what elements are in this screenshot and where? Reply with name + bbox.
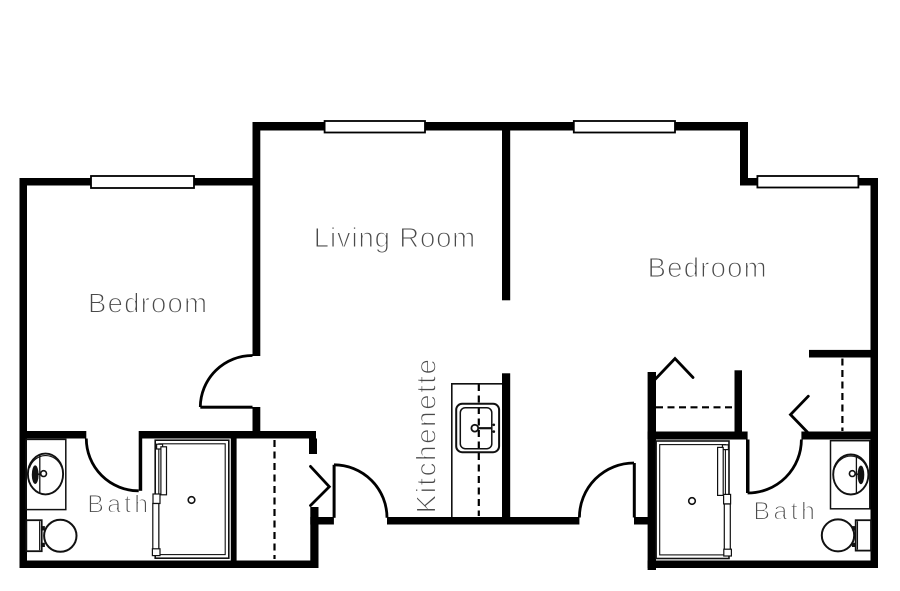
svg-text:Bath: Bath	[753, 497, 815, 525]
svg-text:Bedroom: Bedroom	[88, 288, 207, 319]
svg-text:Kitchenette: Kitchenette	[411, 359, 442, 514]
svg-text:Bedroom: Bedroom	[648, 252, 767, 283]
svg-text:Living Room: Living Room	[314, 222, 475, 253]
svg-text:Bath: Bath	[87, 491, 148, 519]
